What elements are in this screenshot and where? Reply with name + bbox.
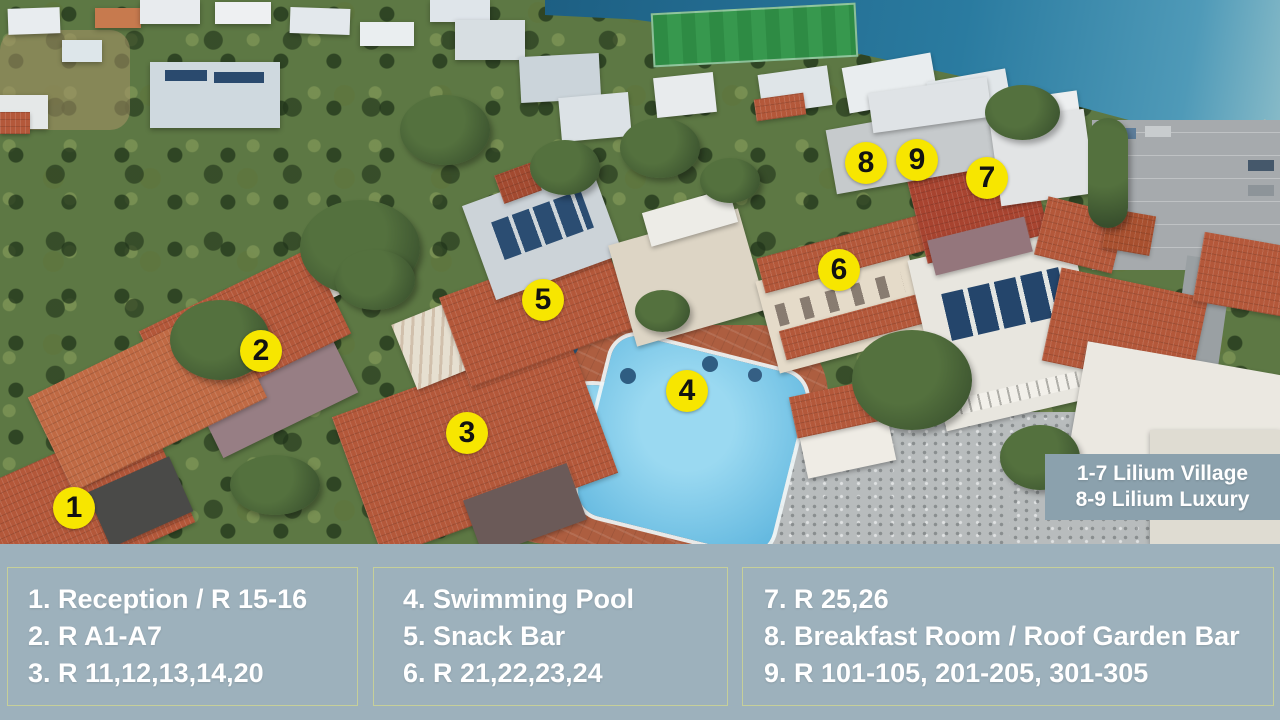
marker-number: 1 bbox=[66, 491, 83, 525]
map-marker-7: 7 bbox=[966, 157, 1008, 199]
area-label-line1: 1-7 Lilium Village bbox=[1077, 461, 1248, 487]
town-building bbox=[430, 0, 490, 22]
town-building bbox=[290, 7, 351, 35]
marker-number: 2 bbox=[253, 334, 270, 368]
map-marker-8: 8 bbox=[845, 142, 887, 184]
tree bbox=[620, 118, 700, 178]
tree bbox=[985, 85, 1060, 140]
marker-number: 3 bbox=[459, 416, 476, 450]
legend-item: 6. R 21,22,23,24 bbox=[403, 658, 727, 689]
marker-number: 8 bbox=[858, 146, 875, 180]
map-marker-5: 5 bbox=[522, 279, 564, 321]
tree bbox=[700, 158, 760, 203]
legend-column-1: 1. Reception / R 15-16 2. R A1-A7 3. R 1… bbox=[7, 567, 358, 706]
tree bbox=[230, 455, 320, 515]
map-marker-9: 9 bbox=[896, 139, 938, 181]
football-field bbox=[651, 3, 859, 68]
town-building bbox=[360, 22, 414, 46]
area-label-line2: 8-9 Lilium Luxury bbox=[1076, 487, 1250, 513]
resort-map: 1 2 3 4 5 6 7 8 9 1-7 Lilium Village 8-9… bbox=[0, 0, 1280, 720]
pool-umbrella bbox=[702, 356, 718, 372]
legend-item: 1. Reception / R 15-16 bbox=[28, 584, 357, 615]
apartment-building bbox=[653, 72, 717, 118]
town-building bbox=[215, 2, 271, 24]
tree bbox=[400, 95, 490, 165]
town-building bbox=[8, 7, 61, 35]
map-marker-6: 6 bbox=[818, 249, 860, 291]
town-building bbox=[455, 20, 525, 60]
map-marker-1: 1 bbox=[53, 487, 95, 529]
solar-panels bbox=[214, 72, 264, 83]
car bbox=[1248, 185, 1274, 196]
car bbox=[1145, 126, 1171, 137]
legend: 1. Reception / R 15-16 2. R A1-A7 3. R 1… bbox=[0, 544, 1280, 720]
aerial-photo: 1 2 3 4 5 6 7 8 9 1-7 Lilium Village 8-9… bbox=[0, 0, 1280, 544]
marker-number: 4 bbox=[679, 374, 696, 408]
town-building bbox=[140, 0, 200, 24]
legend-column-2: 4. Swimming Pool 5. Snack Bar 6. R 21,22… bbox=[373, 567, 728, 706]
legend-item: 4. Swimming Pool bbox=[403, 584, 727, 615]
town-roof bbox=[0, 112, 30, 134]
legend-item: 3. R 11,12,13,14,20 bbox=[28, 658, 357, 689]
tree bbox=[1088, 118, 1128, 228]
legend-item: 9. R 101-105, 201-205, 301-305 bbox=[764, 658, 1273, 689]
legend-item: 5. Snack Bar bbox=[403, 621, 727, 652]
apartment-building bbox=[558, 92, 632, 142]
legend-item: 8. Breakfast Room / Roof Garden Bar bbox=[764, 621, 1273, 652]
legend-item: 2. R A1-A7 bbox=[28, 621, 357, 652]
map-marker-2: 2 bbox=[240, 330, 282, 372]
tree bbox=[852, 330, 972, 430]
area-label: 1-7 Lilium Village 8-9 Lilium Luxury bbox=[1045, 454, 1280, 520]
marker-number: 5 bbox=[535, 283, 552, 317]
tree bbox=[635, 290, 690, 332]
legend-column-3: 7. R 25,26 8. Breakfast Room / Roof Gard… bbox=[742, 567, 1274, 706]
town-building bbox=[95, 8, 141, 28]
legend-item: 7. R 25,26 bbox=[764, 584, 1273, 615]
solar-panels bbox=[165, 70, 207, 81]
marker-number: 9 bbox=[909, 143, 926, 177]
pool-umbrella bbox=[748, 368, 762, 382]
car bbox=[1248, 160, 1274, 171]
town-building bbox=[62, 40, 102, 62]
tree bbox=[530, 140, 600, 195]
pool-umbrella bbox=[620, 368, 636, 384]
marker-number: 7 bbox=[979, 161, 996, 195]
tree bbox=[335, 250, 415, 310]
map-marker-4: 4 bbox=[666, 370, 708, 412]
marker-number: 6 bbox=[831, 253, 848, 287]
map-marker-3: 3 bbox=[446, 412, 488, 454]
